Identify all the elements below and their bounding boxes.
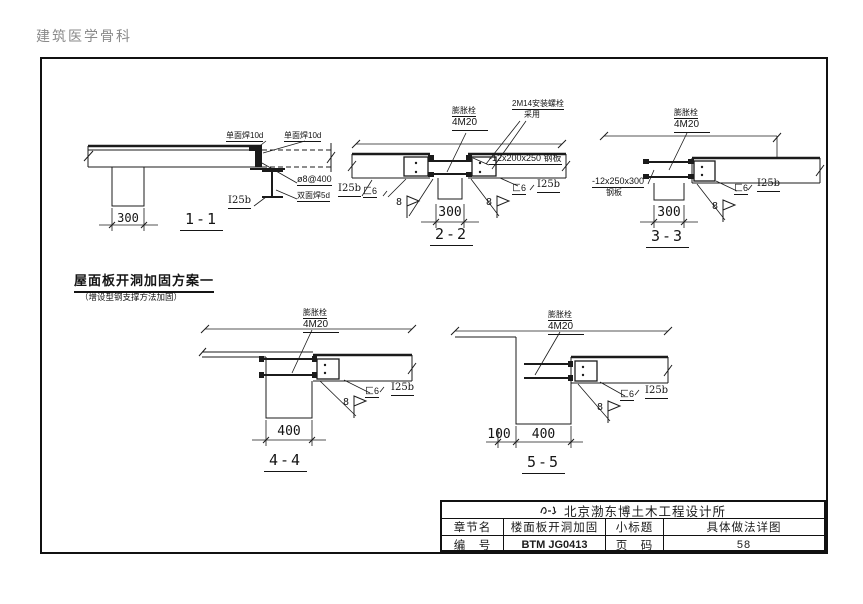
title-block: 北京渤东博土木工程设计所 章节名 楼面板开洞加固 小标题 具体做法详图 编 号 … [440, 500, 826, 552]
number-value: BTM JG0413 [504, 536, 606, 553]
subtitle-label: 小标题 [606, 519, 664, 536]
bolt-note: 采用 [524, 110, 540, 119]
section-title-1-1: 1-1 [180, 210, 223, 231]
ibeam-mark: I25b [391, 382, 414, 396]
chapter-label: 章节名 [442, 519, 504, 536]
weld-size: 8 [597, 402, 603, 413]
anchor-spec: 4M20 [452, 117, 488, 131]
page-value: 58 [664, 536, 824, 553]
title-block-grid: 章节名 楼面板开洞加固 小标题 具体做法详图 编 号 BTM JG0413 页 … [442, 519, 824, 553]
weld-note: 单面焊10d [284, 131, 321, 142]
weld-size: 8 [486, 197, 492, 208]
dimension-400: 400 [260, 424, 318, 439]
section-title-2-2: 2-2 [430, 225, 473, 246]
anchor-note: 膨胀栓 [548, 310, 572, 321]
weld-size: 8 [343, 397, 349, 408]
company-name: 北京渤东博土木工程设计所 [564, 501, 726, 520]
ibeam-mark: I25b [338, 183, 361, 197]
plate-note: -12x200x250 钢板 [489, 153, 562, 165]
weld-size: 8 [396, 197, 402, 208]
anchor-spec: 4M20 [303, 319, 339, 333]
anchor-spec: 4M20 [674, 119, 710, 133]
channel-mark: 匚6 [734, 183, 748, 195]
number-label: 编 号 [442, 536, 504, 553]
rebar-note: ø8@400 [297, 174, 332, 186]
company-logo-icon [540, 504, 558, 516]
dimension-100: 100 [484, 427, 514, 442]
section-title-4-4: 4-4 [264, 451, 307, 472]
channel-mark: 匚6 [512, 183, 526, 195]
dimension-300: 300 [421, 205, 479, 220]
channel-mark: 匚6 [363, 186, 377, 198]
plate-note: 钢板 [606, 188, 622, 197]
ibeam-mark: I25b [757, 178, 780, 192]
channel-mark: 匚6 [620, 389, 634, 401]
anchor-spec: 4M20 [548, 321, 584, 335]
ibeam-mark: I25b [537, 179, 560, 193]
ibeam-mark: I25b [645, 385, 668, 399]
page-label: 页 码 [606, 536, 664, 553]
scheme-title: 屋面板开洞加固方案一 [74, 270, 214, 293]
title-block-company-row: 北京渤东博土木工程设计所 [442, 502, 824, 519]
weld-note: 双面焊5d [297, 191, 330, 202]
section-title-3-3: 3-3 [646, 227, 689, 248]
chapter-value: 楼面板开洞加固 [504, 519, 606, 536]
scheme-subtitle: （增设型钢支撑方法加固） [80, 291, 182, 303]
subtitle-value: 具体做法详图 [664, 519, 824, 536]
weld-note: 单面焊10d [226, 131, 263, 142]
anchor-note: 膨胀栓 [452, 106, 476, 117]
plate-note: -12x250x300 [592, 176, 644, 188]
drawing-sheet: 建筑医学骨科 [0, 0, 863, 604]
section-title-5-5: 5-5 [522, 453, 565, 474]
anchor-note: 膨胀栓 [674, 108, 698, 119]
dimension-300: 300 [106, 211, 150, 225]
dimension-300: 300 [640, 205, 698, 220]
anchor-note: 膨胀栓 [303, 308, 327, 319]
ibeam-mark: I25b [228, 195, 251, 209]
bolt-note: 2M14安装螺栓 [512, 99, 564, 110]
dimension-400: 400 [516, 427, 571, 442]
weld-size: 8 [712, 201, 718, 212]
channel-mark: 匚6 [365, 386, 379, 398]
